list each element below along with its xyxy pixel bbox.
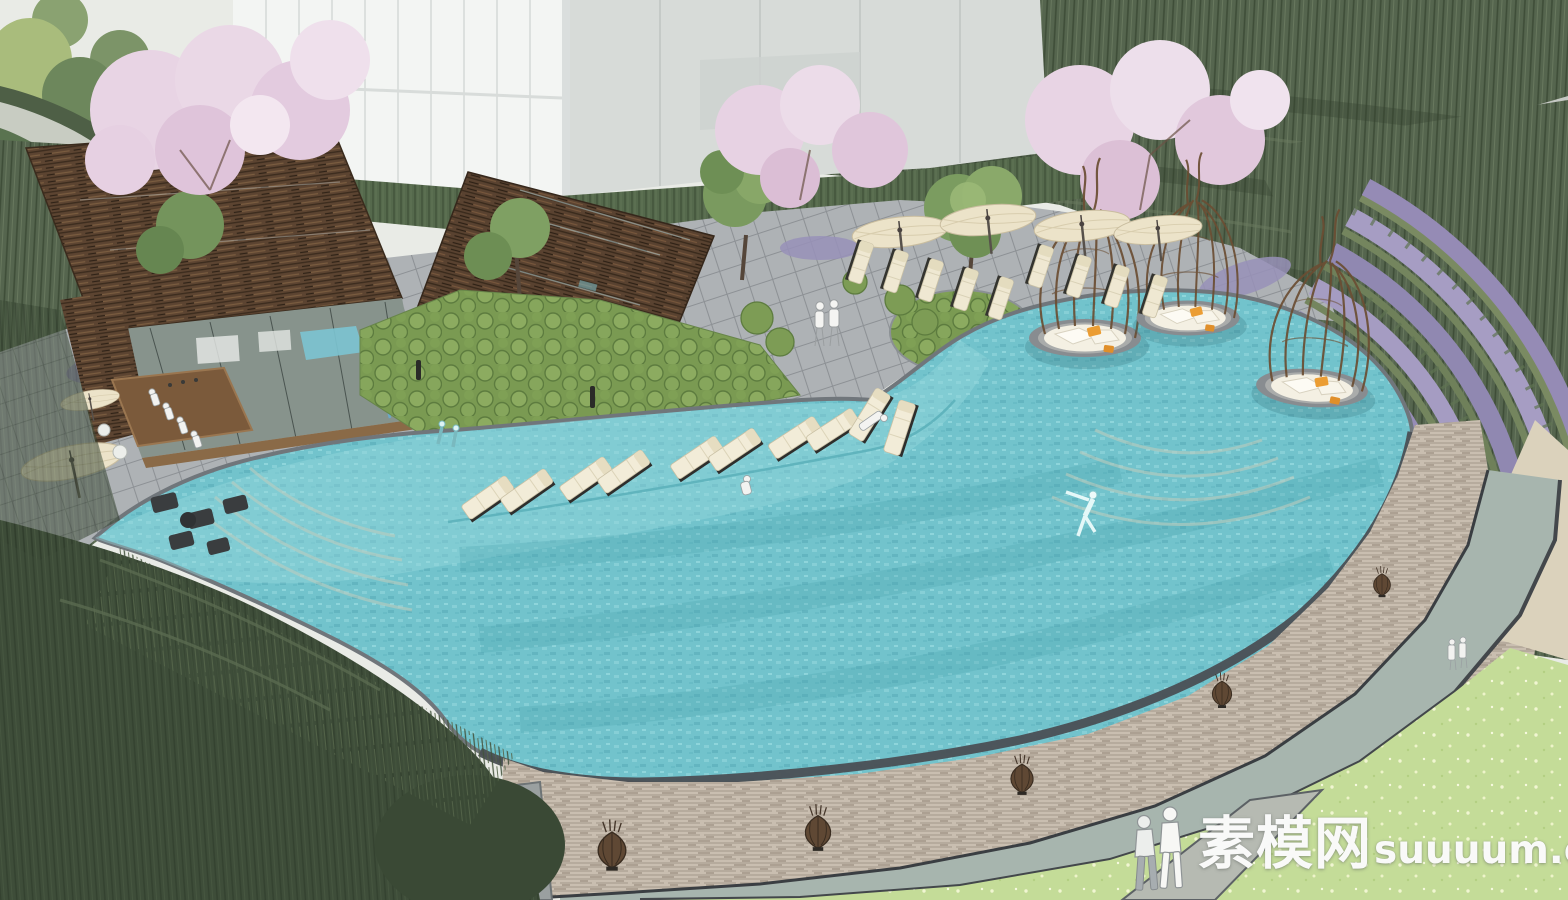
watermark-domain: suuuum.com <box>1374 831 1568 870</box>
scene-rendering-svg <box>0 0 1568 900</box>
rendering-viewport: 素模网suuuum.com <box>0 0 1568 900</box>
watermark: 素模网suuuum.com <box>1198 816 1568 873</box>
watermark-site-name: 素模网 <box>1198 816 1372 873</box>
